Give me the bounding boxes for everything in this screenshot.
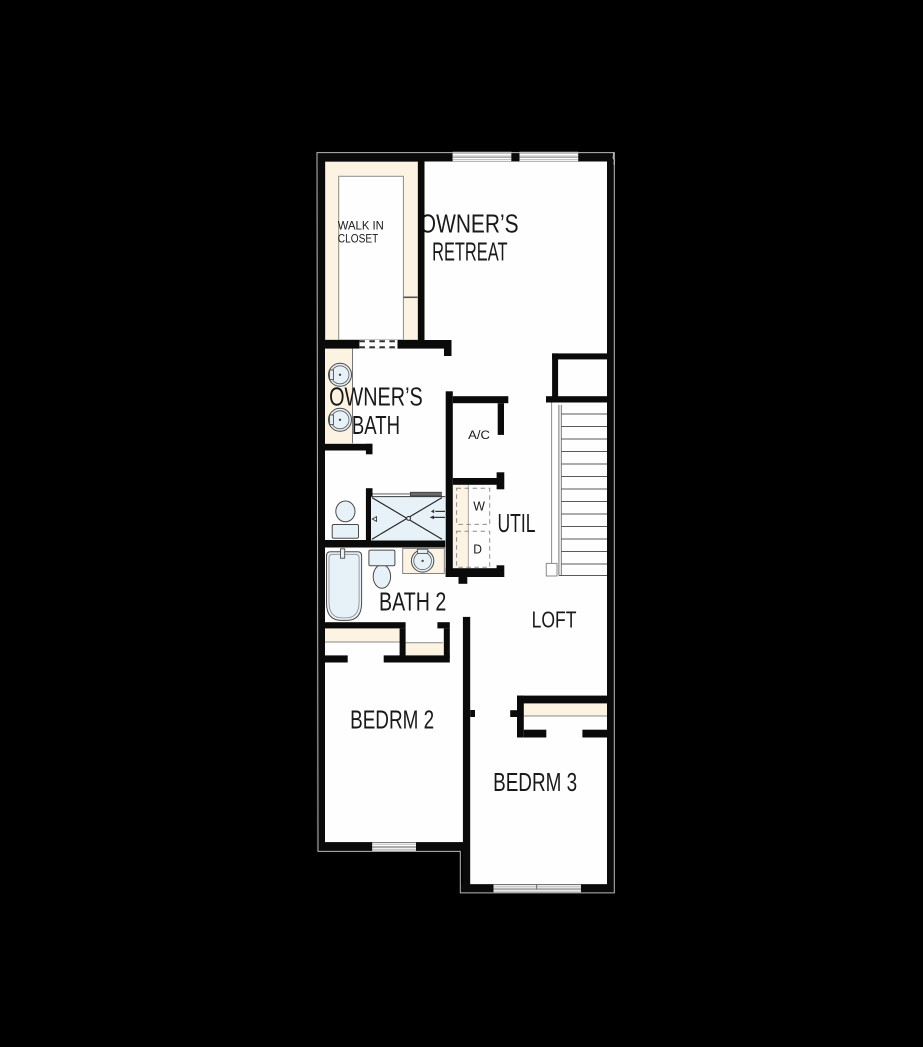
svg-text:OWNER’S: OWNER’S bbox=[329, 384, 423, 412]
svg-text:BEDRM 2: BEDRM 2 bbox=[350, 707, 434, 735]
svg-text:BATH: BATH bbox=[352, 412, 400, 440]
svg-text:A/C: A/C bbox=[468, 428, 490, 442]
svg-text:LOFT: LOFT bbox=[532, 606, 577, 632]
svg-text:W: W bbox=[473, 499, 485, 514]
svg-text:WALK IN: WALK IN bbox=[338, 219, 384, 233]
svg-text:BATH 2: BATH 2 bbox=[379, 588, 446, 616]
svg-text:BEDRM 3: BEDRM 3 bbox=[493, 769, 577, 797]
svg-text:RETREAT: RETREAT bbox=[432, 239, 507, 267]
svg-text:OWNER’S: OWNER’S bbox=[420, 211, 519, 239]
svg-text:D: D bbox=[473, 542, 482, 557]
svg-text:CLOSET: CLOSET bbox=[338, 232, 379, 246]
svg-text:UTIL: UTIL bbox=[498, 510, 536, 538]
